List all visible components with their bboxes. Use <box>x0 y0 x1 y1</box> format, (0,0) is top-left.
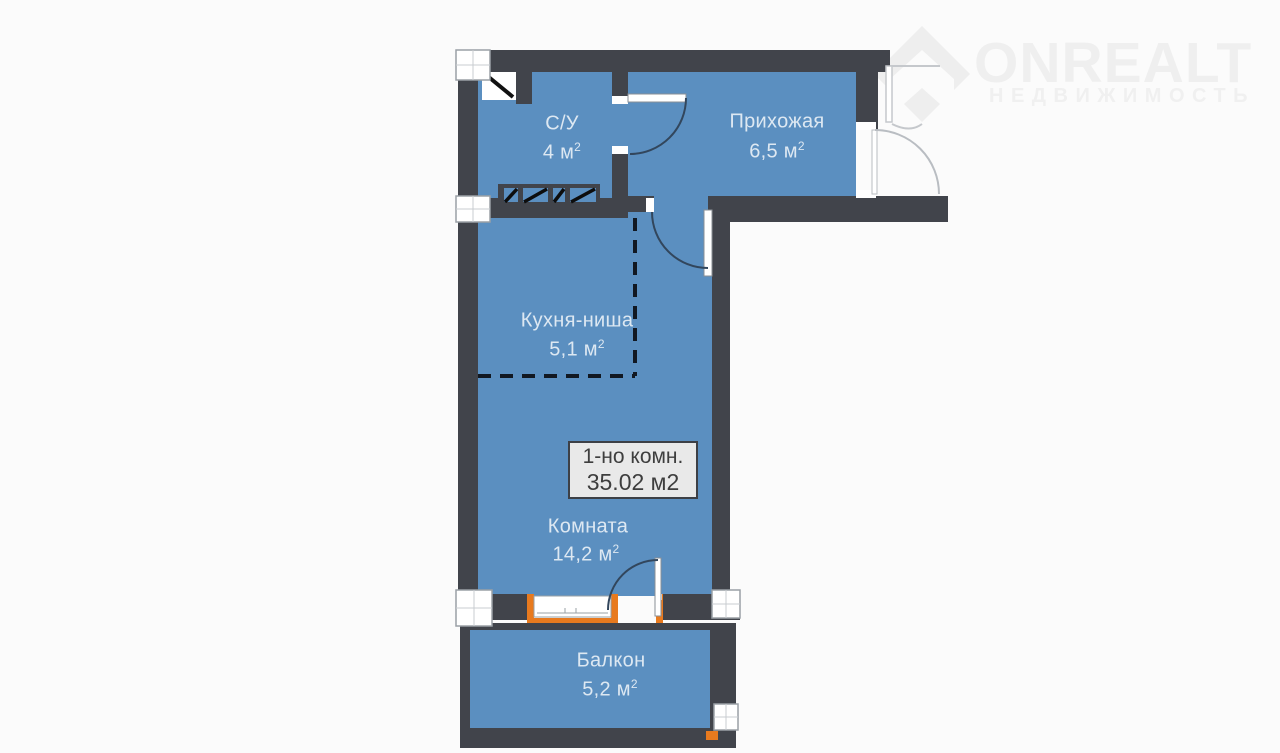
room-area-living-room: 14,2 м2 <box>552 544 619 567</box>
entry-door <box>856 122 939 198</box>
room-area-value: 14,2 м <box>552 544 612 566</box>
logo-tagline-text: НЕДВИЖИМОСТЬ <box>989 85 1269 108</box>
room-area-sup: 2 <box>631 677 638 691</box>
floor-plan <box>0 0 1280 753</box>
room-area-sup: 2 <box>798 139 805 153</box>
apartment-total-area: 35.02 м2 <box>587 469 680 495</box>
room-label-bathroom: С/У <box>545 113 579 136</box>
floors <box>460 72 856 748</box>
room-area-bathroom: 4 м2 <box>543 142 581 165</box>
vent-shaft-hatch <box>498 184 600 208</box>
room-area-value: 4 м <box>543 142 574 164</box>
room-area-sup: 2 <box>598 337 605 351</box>
room-area-sup: 2 <box>574 140 581 154</box>
floorplan-page: С/У 4 м2 Прихожая 6,5 м2 Кухня-ниша 5,1 … <box>0 0 1280 753</box>
room-area-kitchen-niche: 5,1 м2 <box>549 339 605 362</box>
room-label-hallway: Прихожая <box>729 111 824 134</box>
apartment-summary-box: 1-но комн. 35.02 м2 <box>568 441 698 499</box>
room-label-kitchen-niche: Кухня-ниша <box>521 310 634 333</box>
room-area-value: 5,2 м <box>582 679 631 701</box>
room-area-balcony: 5,2 м2 <box>582 679 638 702</box>
balcony-window <box>527 594 618 623</box>
room-area-hallway: 6,5 м2 <box>749 141 805 164</box>
room-area-value: 6,5 м <box>749 141 798 163</box>
room-label-living-room: Комната <box>548 516 628 539</box>
apartment-type: 1-но комн. <box>583 445 684 469</box>
room-area-sup: 2 <box>613 542 620 556</box>
room-label-balcony: Балкон <box>577 650 646 673</box>
room-area-value: 5,1 м <box>549 339 598 361</box>
